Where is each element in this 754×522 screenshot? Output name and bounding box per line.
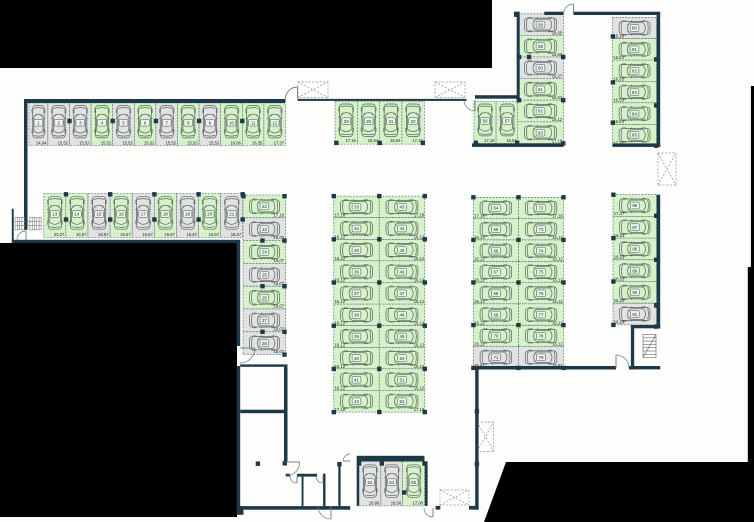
svg-text:41: 41 (354, 377, 359, 382)
svg-text:17,37: 17,37 (274, 140, 285, 145)
svg-text:16,65: 16,65 (552, 30, 563, 35)
svg-text:16,12: 16,12 (552, 299, 563, 304)
svg-text:73: 73 (539, 227, 544, 232)
svg-text:17,16: 17,16 (345, 138, 356, 143)
svg-text:16,12: 16,12 (552, 117, 563, 122)
svg-text:24: 24 (262, 250, 267, 255)
svg-text:16,12: 16,12 (552, 256, 563, 261)
svg-text:81: 81 (632, 47, 637, 52)
svg-text:17,18: 17,18 (335, 407, 346, 412)
svg-text:17,00: 17,00 (413, 501, 424, 506)
svg-text:79: 79 (539, 355, 544, 360)
svg-text:16,67: 16,67 (76, 232, 87, 237)
svg-text:13: 13 (52, 212, 57, 217)
svg-text:12: 12 (272, 121, 277, 126)
svg-text:78: 78 (539, 334, 544, 339)
svg-text:16,53: 16,53 (613, 98, 624, 103)
svg-text:84: 84 (632, 111, 637, 116)
svg-text:16,12: 16,12 (474, 320, 485, 325)
svg-text:44: 44 (400, 226, 405, 231)
svg-text:14: 14 (75, 212, 80, 217)
svg-text:16,67: 16,67 (142, 232, 153, 237)
svg-text:68: 68 (493, 291, 498, 296)
svg-text:16,12: 16,12 (414, 299, 425, 304)
svg-text:16,12: 16,12 (335, 386, 346, 391)
svg-text:26: 26 (262, 295, 267, 300)
svg-text:16,12: 16,12 (474, 278, 485, 283)
svg-text:72: 72 (539, 206, 544, 211)
svg-text:67: 67 (493, 270, 498, 275)
svg-text:16,12: 16,12 (552, 342, 563, 347)
svg-text:17,18: 17,18 (474, 214, 485, 219)
svg-text:46: 46 (400, 269, 405, 274)
svg-text:63: 63 (538, 130, 543, 135)
svg-text:15,52: 15,52 (101, 140, 112, 145)
svg-text:16,00: 16,00 (391, 501, 402, 506)
svg-text:16,07: 16,07 (274, 258, 285, 263)
svg-text:38: 38 (354, 313, 359, 318)
svg-text:83: 83 (632, 90, 637, 95)
svg-text:10: 10 (229, 121, 234, 126)
svg-text:40: 40 (354, 356, 359, 361)
svg-text:16,67: 16,67 (120, 232, 131, 237)
svg-text:30: 30 (366, 119, 371, 124)
svg-text:53: 53 (368, 480, 373, 485)
svg-text:17,37: 17,37 (614, 211, 625, 216)
svg-text:48: 48 (400, 313, 405, 318)
svg-text:15,52: 15,52 (58, 140, 69, 145)
svg-text:17: 17 (141, 212, 146, 217)
svg-text:16,12: 16,12 (474, 299, 485, 304)
svg-text:33: 33 (354, 205, 359, 210)
svg-text:18: 18 (163, 212, 168, 217)
svg-text:57: 57 (505, 119, 510, 124)
svg-text:16,12: 16,12 (414, 256, 425, 261)
svg-text:16,67: 16,67 (98, 232, 109, 237)
svg-text:16,12: 16,12 (474, 235, 485, 240)
svg-text:61: 61 (538, 87, 543, 92)
svg-text:17,18: 17,18 (335, 213, 346, 218)
svg-text:34: 34 (354, 226, 359, 231)
svg-text:15,52: 15,52 (144, 140, 155, 145)
svg-text:16,54: 16,54 (390, 138, 401, 143)
svg-text:69: 69 (493, 312, 498, 317)
svg-text:23: 23 (262, 227, 267, 232)
svg-text:17,18: 17,18 (414, 213, 425, 218)
svg-text:11: 11 (251, 121, 256, 126)
svg-text:15,52: 15,52 (79, 140, 90, 145)
svg-text:66: 66 (493, 248, 498, 253)
svg-text:28: 28 (262, 341, 267, 346)
svg-text:16,54: 16,54 (368, 138, 379, 143)
svg-text:20: 20 (207, 212, 212, 217)
svg-text:58: 58 (538, 22, 543, 27)
svg-text:16,67: 16,67 (231, 232, 242, 237)
svg-text:82: 82 (632, 69, 637, 74)
svg-text:35: 35 (354, 248, 359, 253)
svg-text:54: 54 (389, 480, 394, 485)
svg-text:16,12: 16,12 (335, 342, 346, 347)
svg-text:87: 87 (632, 225, 637, 230)
svg-text:16,67: 16,67 (209, 232, 220, 237)
svg-text:47: 47 (400, 291, 405, 296)
svg-text:16,12: 16,12 (335, 364, 346, 369)
svg-text:20,27: 20,27 (54, 232, 65, 237)
svg-text:16,12: 16,12 (335, 256, 346, 261)
svg-text:60: 60 (538, 66, 543, 71)
svg-text:21: 21 (229, 212, 234, 217)
svg-text:64: 64 (493, 206, 498, 211)
svg-text:16,12: 16,12 (335, 321, 346, 326)
svg-text:49: 49 (400, 334, 405, 339)
svg-text:16,67: 16,67 (187, 232, 198, 237)
svg-text:43: 43 (400, 205, 405, 210)
svg-text:39: 39 (354, 334, 359, 339)
svg-text:77: 77 (539, 312, 544, 317)
svg-text:91: 91 (632, 312, 637, 317)
svg-text:75: 75 (539, 270, 544, 275)
svg-text:37: 37 (354, 291, 359, 296)
svg-text:16,35: 16,35 (252, 140, 263, 145)
svg-text:71: 71 (493, 355, 498, 360)
svg-text:32: 32 (411, 119, 416, 124)
svg-text:15: 15 (97, 212, 102, 217)
svg-text:88: 88 (632, 247, 637, 252)
svg-text:76: 76 (539, 291, 544, 296)
svg-text:19: 19 (185, 212, 190, 217)
svg-text:50: 50 (400, 356, 405, 361)
svg-text:17,18: 17,18 (552, 214, 563, 219)
svg-text:16,12: 16,12 (414, 342, 425, 347)
svg-text:25: 25 (262, 273, 267, 278)
svg-text:52: 52 (400, 399, 405, 404)
svg-text:45: 45 (400, 248, 405, 253)
svg-text:56: 56 (483, 119, 488, 124)
svg-text:16,12: 16,12 (335, 234, 346, 239)
svg-text:16,12: 16,12 (474, 342, 485, 347)
svg-text:14,04: 14,04 (36, 140, 47, 145)
svg-text:90: 90 (632, 290, 637, 295)
svg-text:16,06: 16,06 (230, 140, 241, 145)
svg-text:16,12: 16,12 (414, 386, 425, 391)
svg-text:17,16: 17,16 (484, 138, 495, 143)
svg-text:27: 27 (262, 318, 267, 323)
svg-text:16: 16 (119, 212, 124, 217)
svg-text:16,12: 16,12 (335, 278, 346, 283)
svg-text:86: 86 (632, 203, 637, 208)
svg-text:51: 51 (400, 377, 405, 382)
svg-text:16,12: 16,12 (474, 256, 485, 261)
svg-text:17,16: 17,16 (274, 212, 285, 217)
svg-text:16,20: 16,20 (614, 298, 625, 303)
svg-text:22: 22 (262, 204, 267, 209)
svg-text:15,52: 15,52 (122, 140, 133, 145)
svg-text:16,53: 16,53 (613, 55, 624, 60)
svg-text:16,00: 16,00 (369, 501, 380, 506)
svg-text:89: 89 (632, 268, 637, 273)
svg-text:85: 85 (632, 133, 637, 138)
svg-text:16,67: 16,67 (164, 232, 175, 237)
svg-text:55: 55 (411, 480, 416, 485)
svg-text:16,07: 16,07 (274, 304, 285, 309)
svg-text:70: 70 (493, 334, 498, 339)
svg-text:16,12: 16,12 (335, 299, 346, 304)
svg-text:31: 31 (388, 119, 393, 124)
svg-text:36: 36 (354, 269, 359, 274)
svg-text:62: 62 (538, 109, 543, 114)
svg-text:15,52: 15,52 (166, 140, 177, 145)
svg-text:16,27: 16,27 (552, 74, 563, 79)
svg-text:74: 74 (539, 248, 544, 253)
svg-text:65: 65 (493, 227, 498, 232)
svg-text:80: 80 (632, 26, 637, 31)
svg-text:29: 29 (344, 119, 349, 124)
svg-text:59: 59 (538, 44, 543, 49)
svg-text:16,53: 16,53 (614, 255, 625, 260)
svg-text:42: 42 (354, 399, 359, 404)
svg-text:15,52: 15,52 (187, 140, 198, 145)
svg-text:15,52: 15,52 (209, 140, 220, 145)
